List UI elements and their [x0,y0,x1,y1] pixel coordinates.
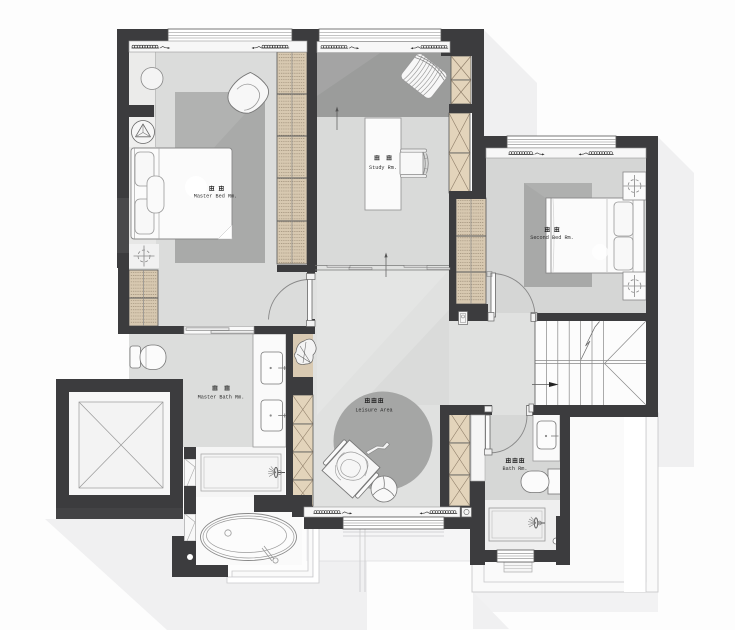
svg-text:Master Bed Rm.: Master Bed Rm. [194,193,238,199]
svg-text:Second Bed Rm.: Second Bed Rm. [530,235,574,241]
svg-text:Study Rm.: Study Rm. [369,165,397,171]
svg-text:Master Bath Rm.: Master Bath Rm. [198,394,245,400]
svg-text:Leisure Area: Leisure Area [355,408,392,414]
svg-text:Bath Rm.: Bath Rm. [503,466,528,472]
